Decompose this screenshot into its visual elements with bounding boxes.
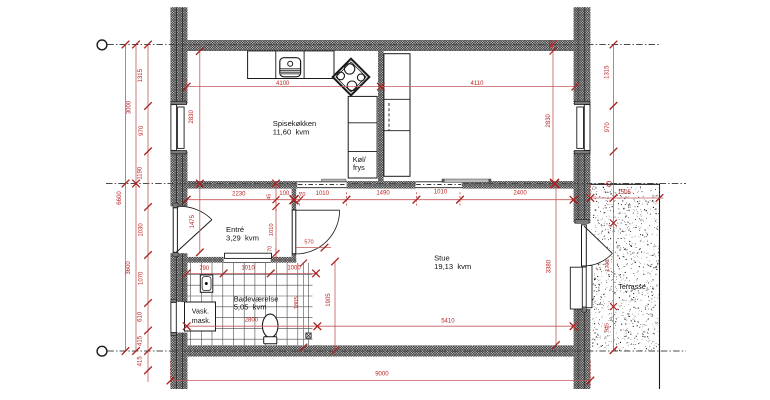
svg-text:Vask.: Vask.: [192, 307, 209, 315]
svg-text:1315: 1315: [138, 68, 144, 82]
svg-text:70: 70: [299, 192, 305, 198]
svg-text:790: 790: [199, 266, 210, 272]
svg-text:3000: 3000: [127, 100, 133, 114]
svg-text:1010: 1010: [316, 191, 330, 197]
svg-text:11,60 kvm: 11,60 kvm: [273, 128, 310, 137]
svg-text:925: 925: [605, 323, 611, 332]
svg-text:2800: 2800: [245, 317, 259, 323]
svg-text:frys: frys: [353, 163, 365, 172]
svg-text:2830: 2830: [546, 113, 552, 127]
svg-text:19,13 kvm: 19,13 kvm: [434, 262, 471, 271]
svg-text:100: 100: [279, 191, 290, 197]
svg-text:5410: 5410: [441, 318, 455, 324]
svg-text:1315: 1315: [604, 65, 610, 79]
svg-text:4100: 4100: [276, 81, 290, 87]
svg-text:mask.: mask.: [192, 317, 211, 325]
svg-text:1010: 1010: [434, 189, 448, 195]
svg-text:970: 970: [605, 122, 611, 133]
svg-text:1805: 1805: [294, 296, 300, 309]
svg-text:6600: 6600: [117, 191, 123, 205]
svg-text:3,29 kvm: 3,29 kvm: [226, 234, 259, 243]
svg-text:45: 45: [266, 194, 272, 200]
svg-text:570: 570: [304, 239, 313, 245]
svg-text:1790: 1790: [605, 260, 611, 272]
svg-text:1030: 1030: [139, 223, 145, 237]
svg-text:1490: 1490: [376, 190, 390, 196]
svg-text:415: 415: [138, 356, 144, 367]
svg-text:1190: 1190: [138, 166, 144, 180]
svg-text:4110: 4110: [471, 81, 485, 87]
svg-text:350: 350: [549, 40, 554, 48]
svg-text:1475: 1475: [190, 214, 196, 228]
svg-text:Terrasse: Terrasse: [618, 282, 646, 291]
svg-text:3600: 3600: [126, 261, 132, 275]
svg-text:970: 970: [139, 125, 145, 136]
svg-text:1505: 1505: [618, 190, 632, 196]
svg-text:1010: 1010: [241, 266, 255, 272]
svg-text:1000: 1000: [287, 266, 301, 272]
svg-text:2400: 2400: [513, 190, 527, 196]
svg-text:3380: 3380: [547, 259, 553, 273]
svg-text:1905: 1905: [326, 293, 332, 307]
svg-text:2230: 2230: [232, 191, 246, 197]
svg-text:2830: 2830: [189, 109, 195, 123]
svg-text:1010: 1010: [269, 223, 275, 236]
svg-text:415: 415: [138, 335, 144, 346]
svg-text:1070: 1070: [139, 271, 145, 285]
svg-text:610: 610: [138, 311, 144, 322]
svg-text:9000: 9000: [375, 371, 389, 377]
svg-text:5,05 kvm: 5,05 kvm: [234, 303, 267, 312]
svg-text:70: 70: [268, 246, 274, 252]
